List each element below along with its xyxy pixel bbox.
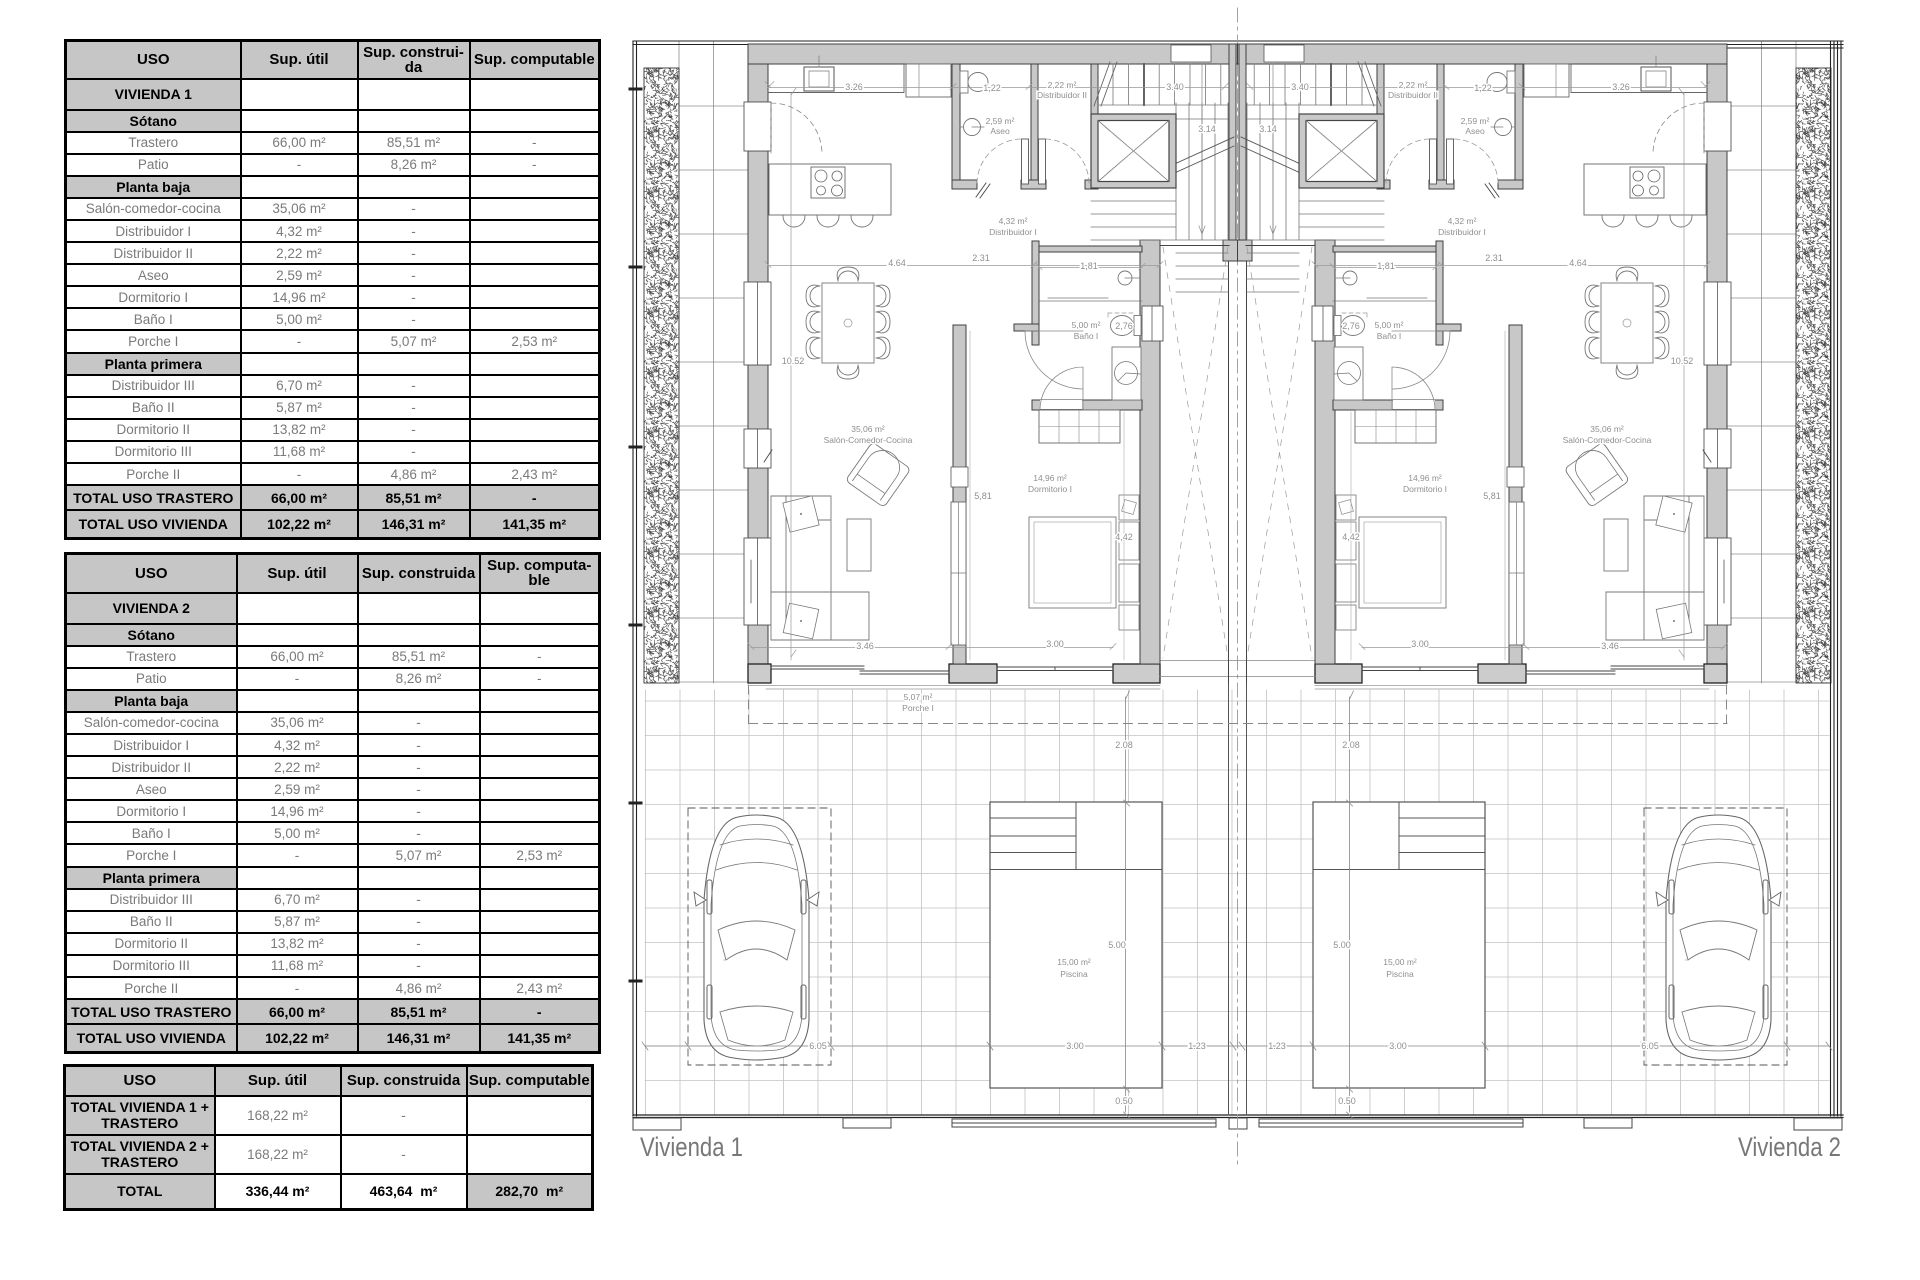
- svg-text:Vivienda 1: Vivienda 1: [640, 1132, 743, 1162]
- svg-text:3.00: 3.00: [1066, 1041, 1084, 1051]
- svg-text:3.26: 3.26: [845, 82, 863, 92]
- svg-text:1,81: 1,81: [1377, 261, 1395, 271]
- svg-text:4,42: 4,42: [1342, 532, 1360, 542]
- svg-text:Porche I: Porche I: [902, 703, 934, 713]
- svg-text:3.14: 3.14: [1259, 124, 1277, 134]
- svg-text:2,59 m²: 2,59 m²: [986, 116, 1015, 126]
- svg-text:10.52: 10.52: [782, 356, 805, 366]
- svg-text:3.26: 3.26: [1612, 82, 1630, 92]
- svg-text:5.00: 5.00: [1108, 940, 1126, 950]
- svg-text:0.50: 0.50: [1115, 1096, 1133, 1106]
- svg-text:Dormitorio I: Dormitorio I: [1403, 484, 1447, 494]
- svg-text:5,07 m²: 5,07 m²: [904, 692, 933, 702]
- svg-text:Piscina: Piscina: [1060, 969, 1088, 979]
- svg-text:5.00: 5.00: [1333, 940, 1351, 950]
- svg-text:2,76: 2,76: [1342, 321, 1360, 331]
- svg-text:4.64: 4.64: [888, 258, 906, 268]
- svg-text:Piscina: Piscina: [1386, 969, 1414, 979]
- svg-text:1.23: 1.23: [1268, 1041, 1286, 1051]
- svg-text:5,81: 5,81: [1483, 491, 1501, 501]
- svg-text:2.31: 2.31: [972, 253, 990, 263]
- svg-text:1,81: 1,81: [1080, 261, 1098, 271]
- svg-text:3.46: 3.46: [856, 641, 874, 651]
- svg-text:3.00: 3.00: [1046, 639, 1064, 649]
- svg-text:Distribuidor I: Distribuidor I: [989, 227, 1037, 237]
- svg-text:3.40: 3.40: [1291, 82, 1309, 92]
- svg-text:1.23: 1.23: [1188, 1041, 1206, 1051]
- svg-text:Dormitorio I: Dormitorio I: [1028, 484, 1072, 494]
- svg-text:5,00 m²: 5,00 m²: [1375, 320, 1404, 330]
- svg-text:1,22: 1,22: [983, 83, 1001, 93]
- svg-text:3.40: 3.40: [1166, 82, 1184, 92]
- svg-text:Baño I: Baño I: [1377, 331, 1402, 341]
- svg-text:2,22 m²: 2,22 m²: [1048, 80, 1077, 90]
- svg-text:3.14: 3.14: [1198, 124, 1216, 134]
- svg-text:5,81: 5,81: [974, 491, 992, 501]
- svg-text:Salón-Comedor-Cocina: Salón-Comedor-Cocina: [824, 435, 913, 445]
- svg-text:Vivienda 2: Vivienda 2: [1738, 1132, 1841, 1162]
- svg-text:35,06 m²: 35,06 m²: [1590, 424, 1624, 434]
- svg-text:0.50: 0.50: [1338, 1096, 1356, 1106]
- svg-text:Baño I: Baño I: [1074, 331, 1099, 341]
- svg-text:6.05: 6.05: [1641, 1041, 1659, 1051]
- svg-text:35,06 m²: 35,06 m²: [851, 424, 885, 434]
- svg-text:Distribuidor II: Distribuidor II: [1388, 90, 1438, 100]
- svg-text:Distribuidor I: Distribuidor I: [1438, 227, 1486, 237]
- svg-text:4,32 m²: 4,32 m²: [999, 216, 1028, 226]
- svg-text:4,42: 4,42: [1115, 532, 1133, 542]
- svg-text:15,00 m²: 15,00 m²: [1057, 957, 1091, 967]
- svg-text:14,96 m²: 14,96 m²: [1033, 473, 1067, 483]
- svg-text:Aseo: Aseo: [1465, 126, 1485, 136]
- svg-text:5,00 m²: 5,00 m²: [1072, 320, 1101, 330]
- svg-text:4.64: 4.64: [1569, 258, 1587, 268]
- svg-text:3.46: 3.46: [1601, 641, 1619, 651]
- svg-text:3.00: 3.00: [1411, 639, 1429, 649]
- svg-text:15,00 m²: 15,00 m²: [1383, 957, 1417, 967]
- svg-text:4,32 m²: 4,32 m²: [1448, 216, 1477, 226]
- svg-text:1,22: 1,22: [1474, 83, 1492, 93]
- svg-text:2.08: 2.08: [1115, 740, 1133, 750]
- svg-text:2.08: 2.08: [1342, 740, 1360, 750]
- svg-text:Salón-Comedor-Cocina: Salón-Comedor-Cocina: [1563, 435, 1652, 445]
- svg-text:10.52: 10.52: [1671, 356, 1694, 366]
- svg-text:2.31: 2.31: [1485, 253, 1503, 263]
- svg-text:14,96 m²: 14,96 m²: [1408, 473, 1442, 483]
- svg-text:2,59 m²: 2,59 m²: [1461, 116, 1490, 126]
- svg-text:Aseo: Aseo: [990, 126, 1010, 136]
- svg-text:2,22 m²: 2,22 m²: [1399, 80, 1428, 90]
- svg-text:3.00: 3.00: [1389, 1041, 1407, 1051]
- svg-text:2,76: 2,76: [1115, 321, 1133, 331]
- svg-text:Distribuidor II: Distribuidor II: [1037, 90, 1087, 100]
- svg-text:6.05: 6.05: [809, 1041, 827, 1051]
